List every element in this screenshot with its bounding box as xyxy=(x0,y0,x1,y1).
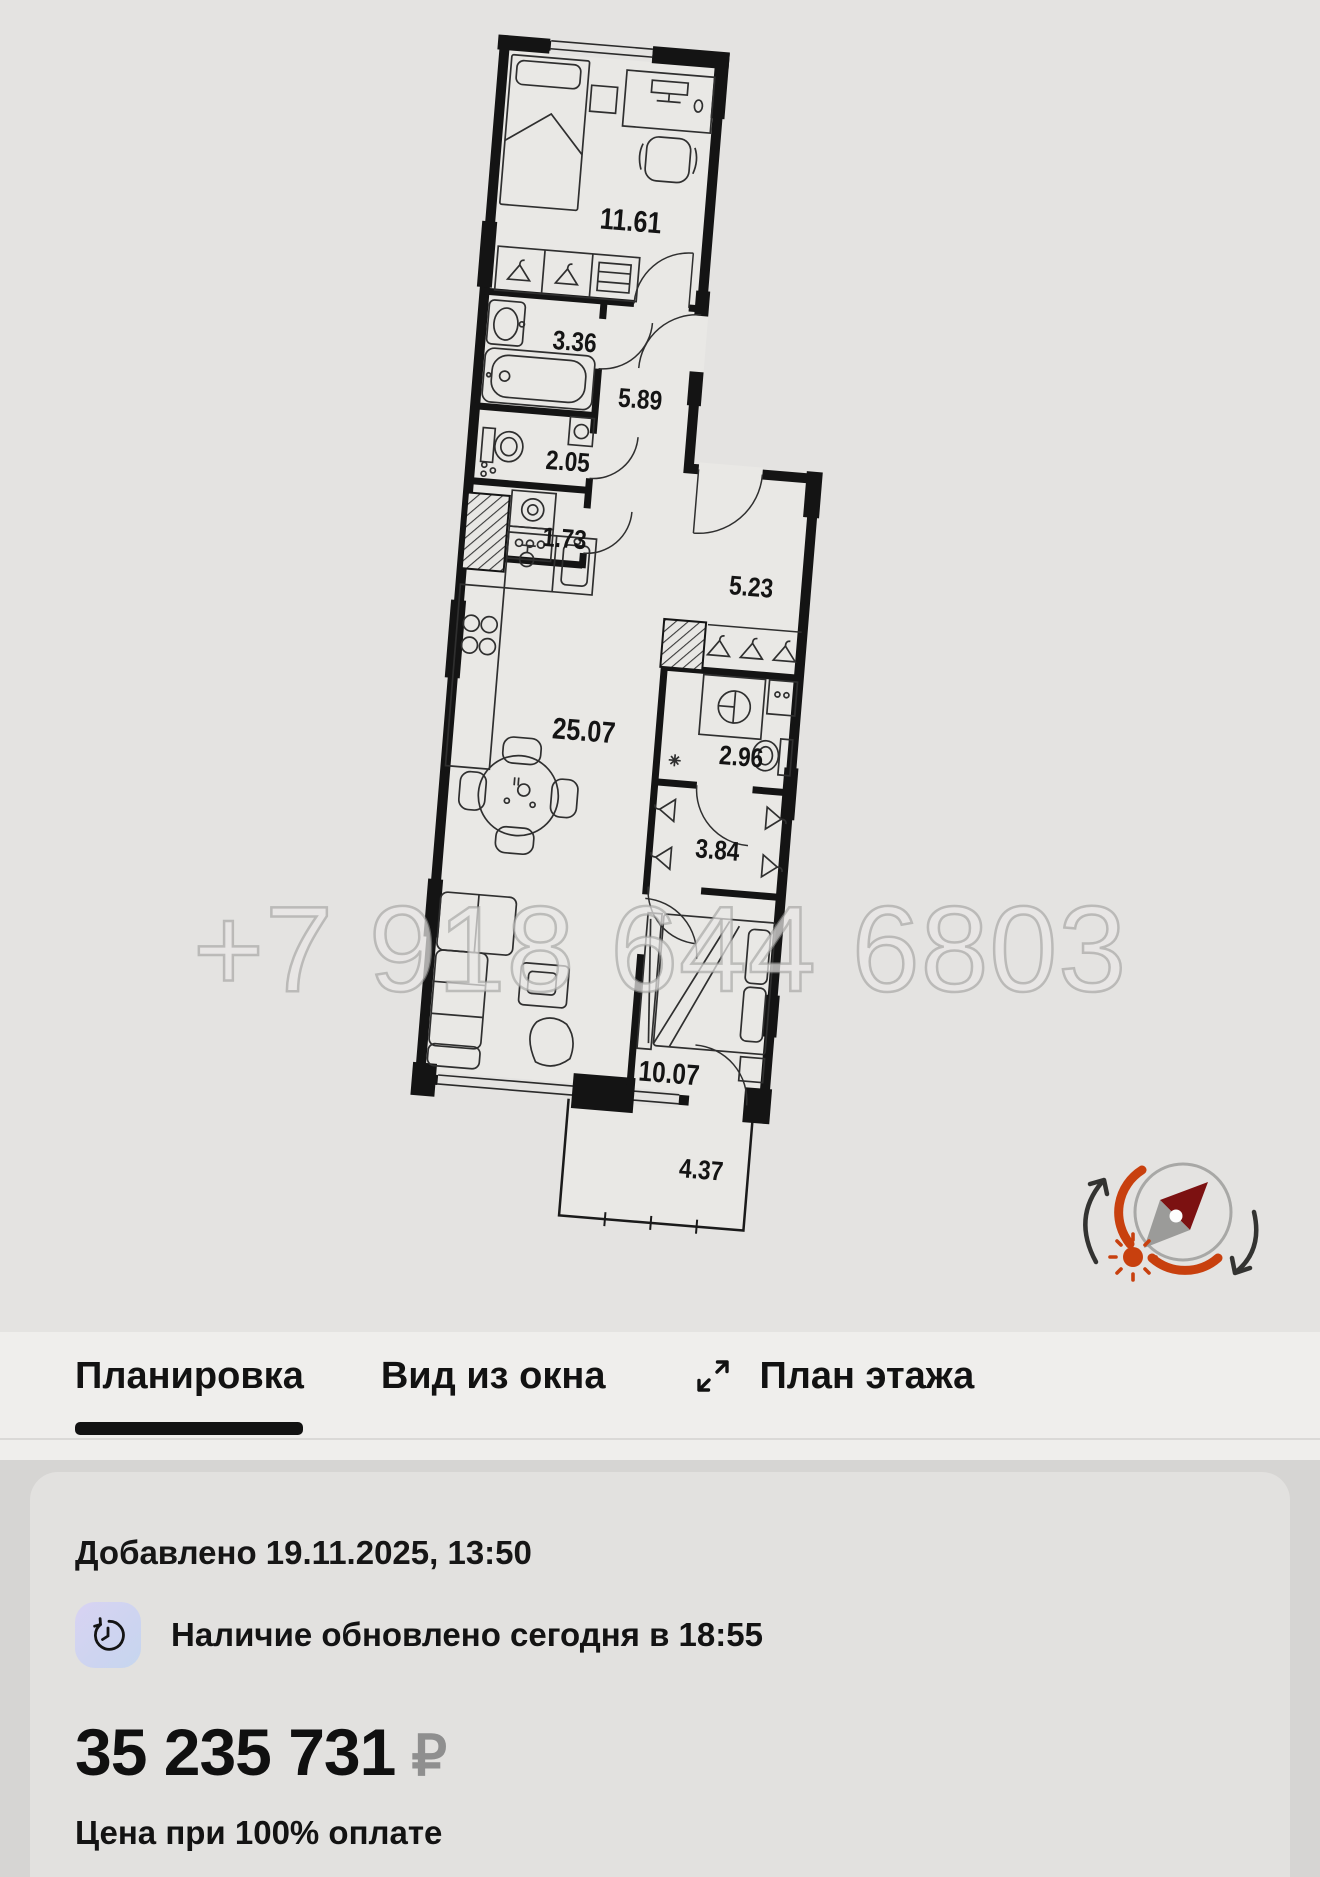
price-value: 35 235 731 xyxy=(75,1714,395,1790)
tab-window-view[interactable]: Вид из окна xyxy=(381,1350,606,1402)
availability-row: Наличие обновлено сегодня в 18:55 xyxy=(75,1602,1245,1668)
sun-icon xyxy=(1110,1234,1156,1280)
room-area-label: 5.23 xyxy=(728,570,774,604)
tab-floor-plan[interactable]: План этажа xyxy=(759,1350,974,1402)
listing-info-card: Добавлено 19.11.2025, 13:50 Наличие обно… xyxy=(30,1472,1290,1877)
compass-icon xyxy=(1085,1164,1256,1280)
room-area-label: 25.07 xyxy=(551,711,617,750)
availability-text: Наличие обновлено сегодня в 18:55 xyxy=(171,1616,763,1654)
tabs-divider xyxy=(0,1438,1320,1440)
room-area-label: 4.37 xyxy=(678,1153,724,1187)
availability-badge xyxy=(75,1602,141,1668)
room-area-label: 5.89 xyxy=(617,383,663,417)
listing-screen: 11.61 3.36 5.89 2.05 1.73 5.23 25.07 2.9… xyxy=(0,0,1320,1877)
added-date: Добавлено 19.11.2025, 13:50 xyxy=(75,1534,1245,1572)
room-area-label: 10.07 xyxy=(637,1054,700,1091)
tab-layout[interactable]: Планировка xyxy=(75,1350,304,1402)
price-row: 35 235 731 ₽ xyxy=(75,1714,1245,1790)
room-area-label: 2.96 xyxy=(718,740,764,774)
currency-ruble-sign: ₽ xyxy=(411,1723,447,1789)
floor-plan-drawing: 11.61 3.36 5.89 2.05 1.73 5.23 25.07 2.9… xyxy=(0,0,1320,1332)
view-tabs: Планировка Вид из окна План этажа xyxy=(0,1332,1320,1460)
clock-refresh-icon xyxy=(88,1615,128,1655)
room-area-label: 2.05 xyxy=(545,445,592,479)
shaft-hatch xyxy=(462,492,510,571)
active-tab-indicator xyxy=(75,1422,303,1435)
bottom-section: Добавлено 19.11.2025, 13:50 Наличие обно… xyxy=(0,1460,1320,1877)
room-area-label: 3.36 xyxy=(551,325,597,359)
room-area-label: 3.84 xyxy=(694,834,741,868)
floor-plan-viewport[interactable]: 11.61 3.36 5.89 2.05 1.73 5.23 25.07 2.9… xyxy=(0,0,1320,1332)
room-area-label: 11.61 xyxy=(599,201,663,240)
shaft-hatch xyxy=(660,619,706,670)
expand-icon[interactable] xyxy=(689,1352,737,1400)
room-area-label: 1.73 xyxy=(541,522,587,556)
price-note: Цена при 100% оплате xyxy=(75,1814,1245,1852)
